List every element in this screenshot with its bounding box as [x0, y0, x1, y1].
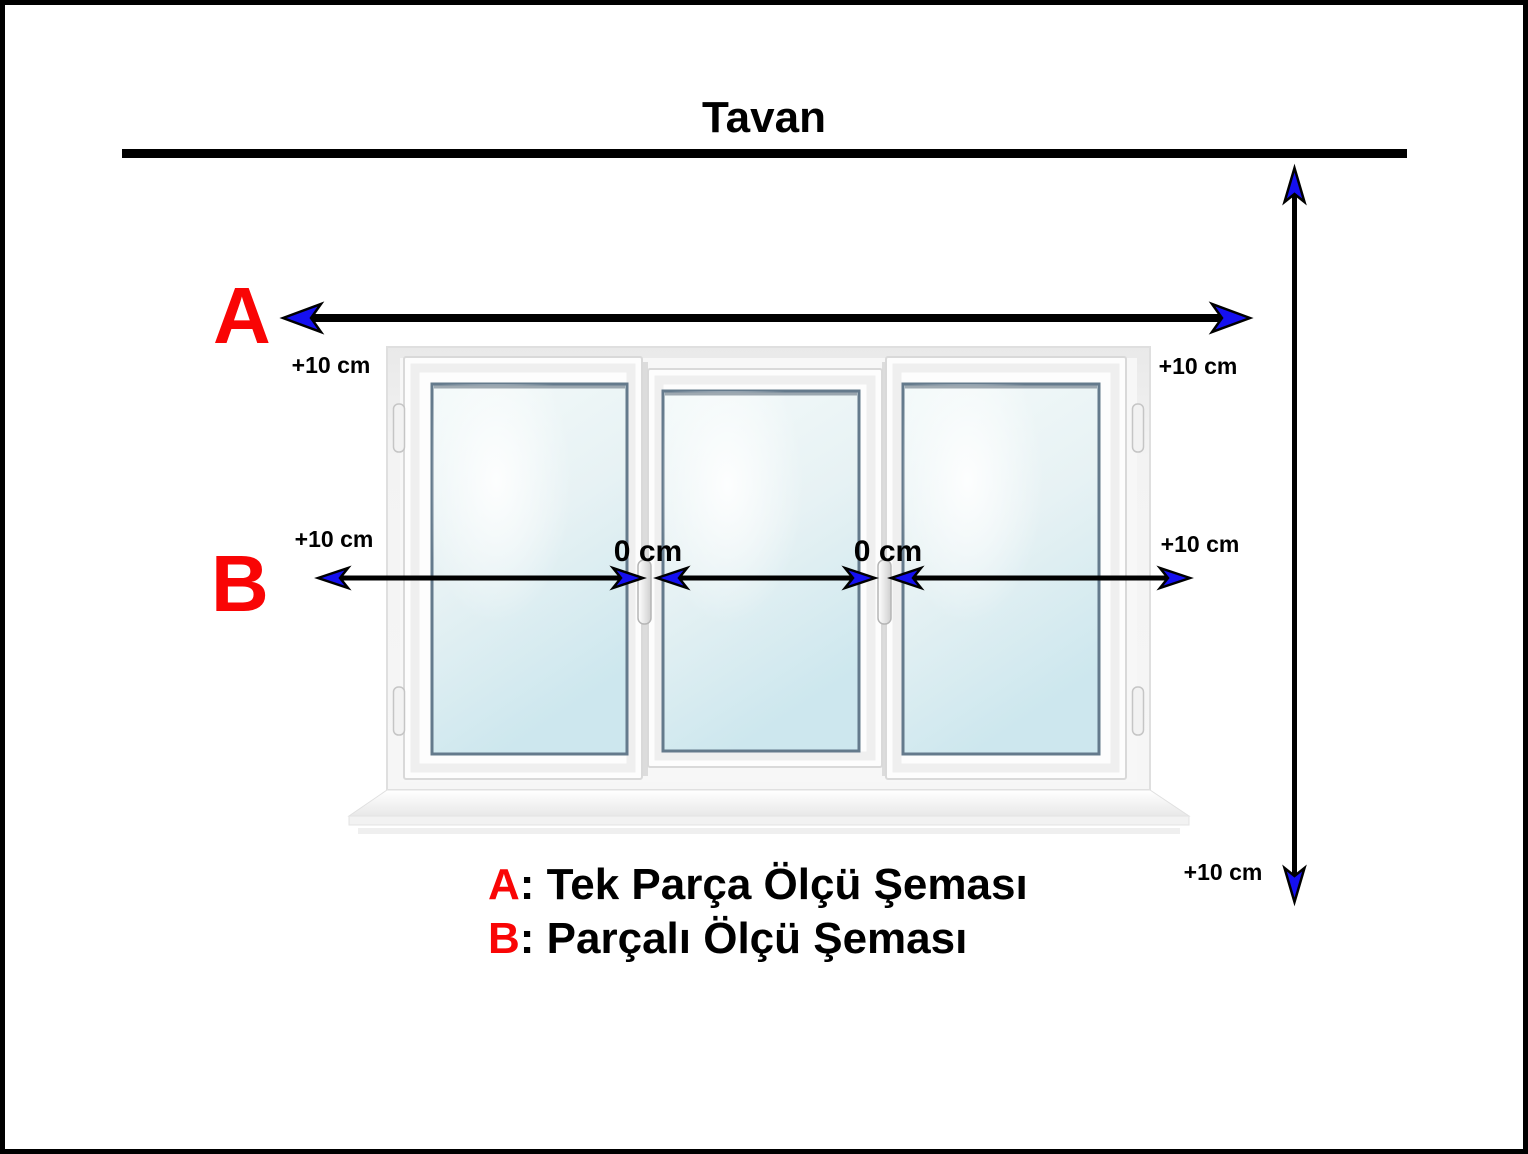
joint-gap-label-left: 0 cm — [588, 537, 708, 567]
window-handle-icon — [638, 560, 651, 624]
scheme-a-letter: A — [213, 276, 271, 356]
legend-item-a: A: Tek Parça Ölçü Şeması — [488, 858, 1028, 912]
offset-label-vertical-bottom: +10 cm — [1175, 861, 1271, 884]
window-pane-left — [404, 357, 642, 779]
ceiling-label: Tavan — [0, 96, 1528, 140]
window-illustration — [349, 347, 1189, 834]
offset-label-a-left: +10 cm — [283, 354, 379, 377]
legend-key-b: B — [488, 914, 520, 963]
ceiling-line — [122, 149, 1407, 158]
legend: A: Tek Parça Ölçü Şeması B: Parçalı Ölçü… — [488, 858, 1028, 966]
offset-label-a-right: +10 cm — [1150, 355, 1246, 378]
scheme-a-arrow — [283, 304, 1250, 332]
window-sill-edge — [349, 816, 1189, 825]
legend-item-b: B: Parçalı Ölçü Şeması — [488, 912, 1028, 966]
offset-label-b-left: +10 cm — [286, 528, 382, 551]
window-handle-icon — [878, 560, 891, 624]
vertical-measure-arrow — [1285, 168, 1305, 902]
scheme-b-letter: B — [211, 544, 269, 624]
legend-key-a: A — [488, 860, 520, 909]
window-hinge — [1133, 404, 1144, 452]
legend-desc-b: : Parçalı Ölçü Şeması — [520, 914, 968, 963]
window-hinge — [394, 687, 405, 735]
window-sill — [349, 790, 1189, 816]
window-hinge — [1133, 687, 1144, 735]
offset-label-b-right: +10 cm — [1152, 533, 1248, 556]
window-sill-shadow — [358, 828, 1180, 834]
legend-desc-a: : Tek Parça Ölçü Şeması — [520, 860, 1028, 909]
measurement-diagram: Tavan A B +10 cm +10 cm +10 cm +10 cm +1… — [0, 0, 1528, 1154]
joint-gap-label-right: 0 cm — [828, 537, 948, 567]
window-hinge — [394, 404, 405, 452]
